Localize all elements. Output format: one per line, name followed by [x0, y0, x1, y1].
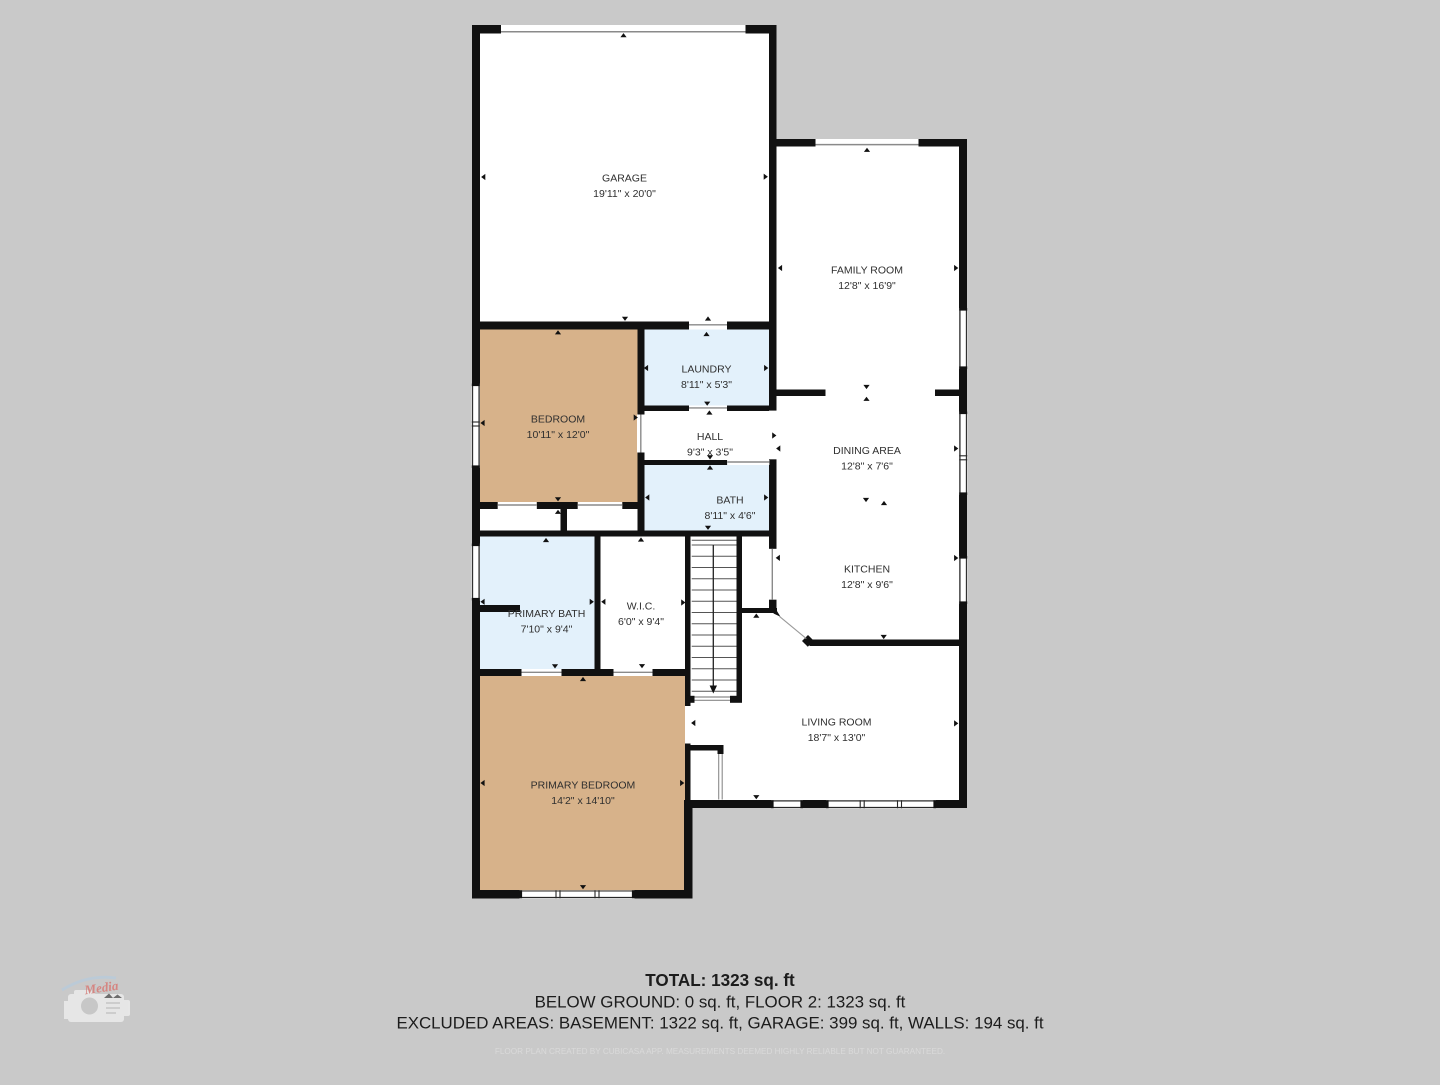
svg-text:18'7" x 13'0": 18'7" x 13'0" [808, 732, 866, 744]
svg-text:8'11" x 5'3": 8'11" x 5'3" [681, 379, 732, 391]
svg-text:PRIMARY BATH: PRIMARY BATH [508, 608, 586, 620]
svg-text:HALL: HALL [697, 431, 723, 443]
svg-text:KITCHEN: KITCHEN [844, 564, 890, 576]
svg-text:FLOOR PLAN CREATED BY CUBICASA: FLOOR PLAN CREATED BY CUBICASA APP. MEAS… [495, 1047, 945, 1056]
svg-text:14'2" x 14'10": 14'2" x 14'10" [551, 795, 615, 807]
svg-text:19'11" x 20'0": 19'11" x 20'0" [593, 188, 656, 200]
svg-text:FAMILY ROOM: FAMILY ROOM [831, 265, 903, 277]
svg-text:TOTAL: 1323 sq. ft: TOTAL: 1323 sq. ft [645, 971, 795, 990]
svg-text:DINING AREA: DINING AREA [833, 445, 901, 457]
svg-text:12'8" x 7'6": 12'8" x 7'6" [841, 460, 893, 472]
svg-text:LAUNDRY: LAUNDRY [682, 364, 732, 376]
svg-text:12'8" x 9'6": 12'8" x 9'6" [841, 579, 893, 591]
svg-text:W.I.C.: W.I.C. [627, 601, 656, 613]
svg-text:7'10" x 9'4": 7'10" x 9'4" [521, 623, 573, 635]
svg-text:6'0" x 9'4": 6'0" x 9'4" [618, 616, 664, 628]
svg-text:BEDROOM: BEDROOM [531, 414, 585, 426]
svg-text:9'3" x 3'5": 9'3" x 3'5" [687, 446, 733, 458]
svg-text:EXCLUDED AREAS: BASEMENT: 1322: EXCLUDED AREAS: BASEMENT: 1322 sq. ft, G… [396, 1014, 1043, 1033]
svg-text:GARAGE: GARAGE [602, 173, 647, 185]
svg-text:BATH: BATH [716, 495, 743, 507]
svg-text:BELOW GROUND: 0 sq. ft, FLOOR: BELOW GROUND: 0 sq. ft, FLOOR 2: 1323 sq… [535, 993, 906, 1012]
svg-text:12'8" x 16'9": 12'8" x 16'9" [838, 280, 896, 292]
svg-text:LIVING ROOM: LIVING ROOM [801, 717, 871, 729]
svg-text:8'11" x 4'6": 8'11" x 4'6" [705, 510, 756, 522]
svg-text:PRIMARY BEDROOM: PRIMARY BEDROOM [531, 780, 636, 792]
svg-text:10'11" x 12'0": 10'11" x 12'0" [527, 429, 590, 441]
